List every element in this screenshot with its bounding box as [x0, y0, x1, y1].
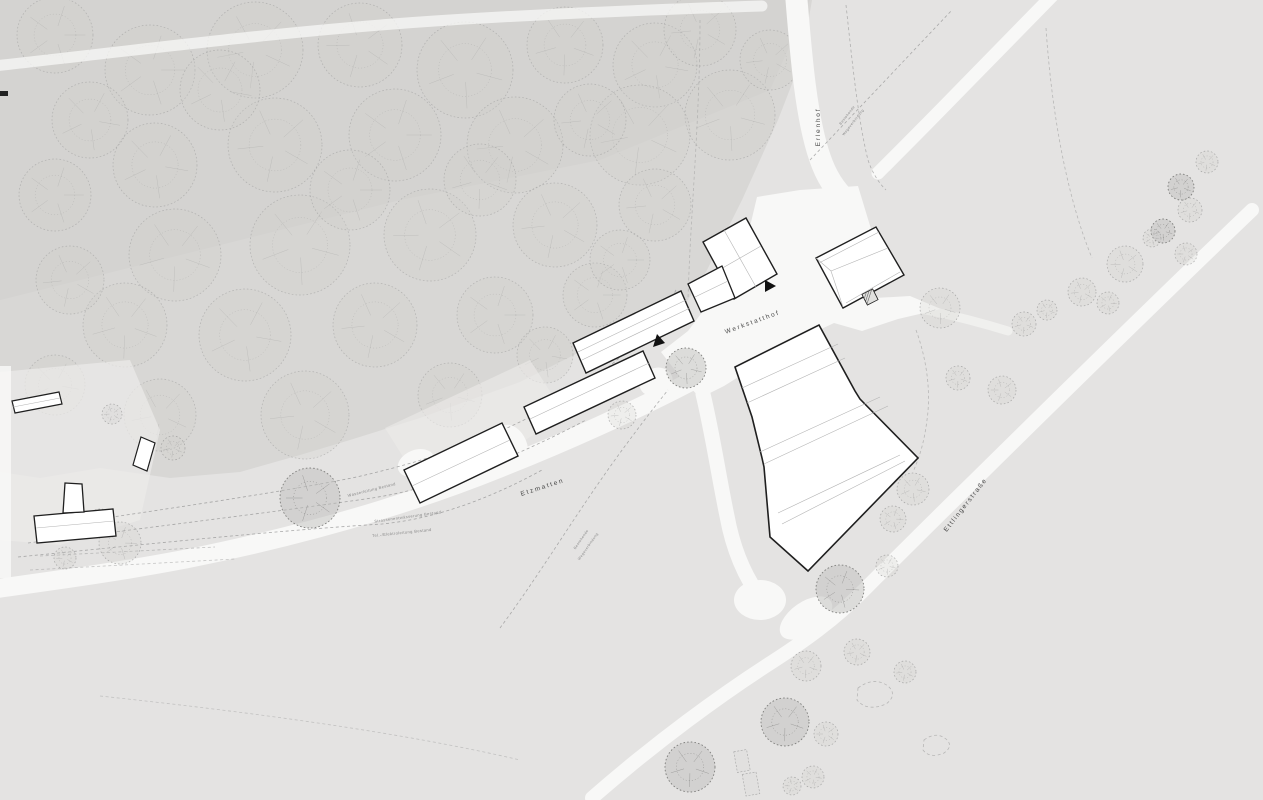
tree-symbol — [988, 376, 1016, 404]
tree-symbol — [816, 565, 864, 613]
tree-symbol — [783, 777, 801, 795]
tree-symbol — [920, 288, 960, 328]
tree-symbol — [554, 84, 626, 156]
tree-symbol — [880, 506, 906, 532]
tree-symbol — [876, 555, 898, 577]
tree-symbol — [619, 169, 691, 241]
tree-symbol — [333, 283, 417, 367]
tree-symbol — [261, 371, 349, 459]
tree-symbol — [180, 50, 260, 130]
tree-symbol — [36, 246, 104, 314]
edge-mark — [0, 91, 8, 96]
tree-symbol — [1107, 246, 1143, 282]
tree-symbol — [1168, 174, 1194, 200]
tree-symbol — [310, 150, 390, 230]
tree-symbol — [608, 401, 636, 429]
site-plan-canvas: ErlenhofWerkstatthofEtzmattenEttlingerst… — [0, 0, 1263, 800]
tree-symbol — [513, 183, 597, 267]
tree-symbol — [444, 144, 516, 216]
tree-symbol — [161, 436, 185, 460]
road-widening-4 — [734, 580, 786, 620]
street-label-erlenhof: Erlenhof — [815, 108, 822, 147]
tree-symbol — [1143, 229, 1161, 247]
tree-symbol — [802, 766, 824, 788]
tree-symbol — [791, 651, 821, 681]
tree-symbol — [113, 123, 197, 207]
site-plan-drawing: ErlenhofWerkstatthofEtzmattenEttlingerst… — [0, 0, 1263, 800]
tree-symbol — [1097, 292, 1119, 314]
tree-symbol — [946, 366, 970, 390]
tree-symbol — [897, 473, 929, 505]
drawing-edge-strip — [0, 366, 11, 578]
tree-symbol — [54, 547, 76, 569]
tree-symbol — [1178, 198, 1202, 222]
building-west-t-stub — [63, 483, 84, 513]
tree-symbol — [1175, 243, 1197, 265]
tree-symbol — [1196, 151, 1218, 173]
tree-symbol — [894, 661, 916, 683]
tree-symbol — [844, 639, 870, 665]
tree-symbol — [1012, 312, 1036, 336]
tree-symbol — [665, 742, 715, 792]
tree-symbol — [318, 3, 402, 87]
tree-symbol — [666, 348, 706, 388]
tree-symbol — [102, 404, 122, 424]
tree-symbol — [19, 159, 91, 231]
tree-symbol — [1037, 300, 1057, 320]
tree-symbol — [814, 722, 838, 746]
tree-symbol — [1068, 278, 1096, 306]
tree-symbol — [280, 468, 340, 528]
tree-symbol — [761, 698, 809, 746]
tree-symbol — [52, 82, 128, 158]
tree-symbol — [199, 289, 291, 381]
tree-symbol — [590, 230, 650, 290]
